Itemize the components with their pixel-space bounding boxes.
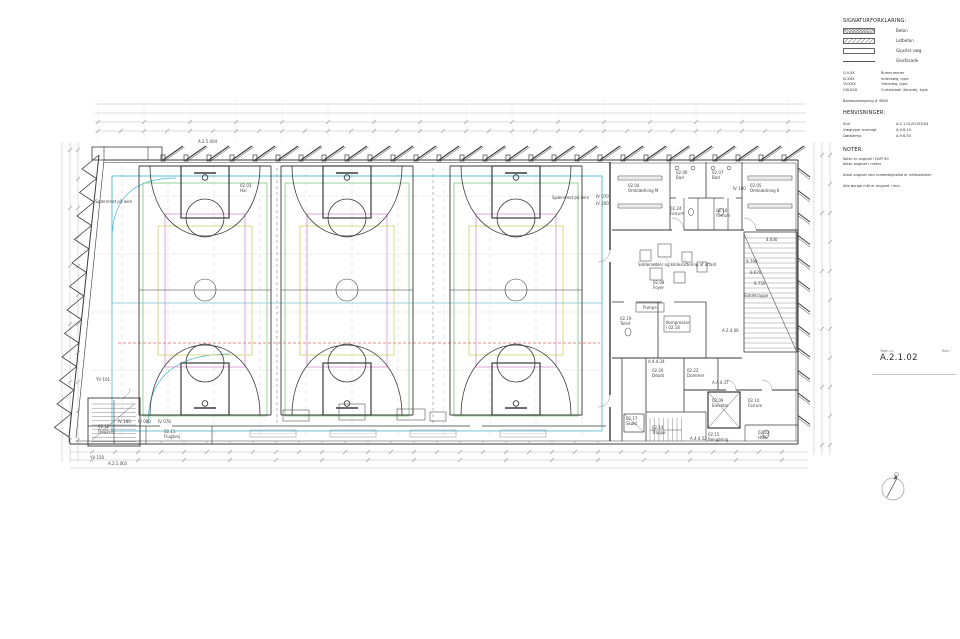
basketball-courts — [139, 166, 582, 415]
legend-extra-note: Baneopstregning jf. 9805 — [843, 99, 888, 103]
drawing-number: A.2.1.02 — [880, 353, 918, 363]
north-arrow — [882, 473, 904, 501]
building-walls — [69, 147, 798, 444]
sw-let-swatch — [843, 48, 875, 54]
floor-plan-svg — [0, 0, 960, 639]
sw-glas-swatch — [843, 61, 875, 62]
references-title: HENVISNINGER: — [843, 110, 885, 116]
escape-stair — [88, 388, 140, 446]
legend-item-label: Gips/let væg — [896, 48, 921, 53]
reference-row: Vægtyper oversigtA.9.6.10 — [843, 128, 911, 132]
sw-letbeton-swatch — [843, 38, 875, 44]
court-overlays — [112, 176, 602, 431]
divider-nets — [277, 168, 433, 424]
drawing-sheet: 02.03 HalSpærrenet på wireSpærrenet på w… — [0, 0, 960, 639]
seating-stair — [744, 232, 797, 352]
revision-label: Rev.: — [942, 349, 951, 353]
reference-row: DørskemaA.9.6.50 — [843, 134, 911, 138]
legend-code-row: CW.XXXCurtainwall (facade), type — [843, 88, 928, 92]
notes-text: Koter er angivet i DVR 90 Koter angivet … — [843, 157, 960, 189]
reference-row: SnitA.3.1.01/02/03/04 — [843, 122, 928, 126]
legend-item: Beton — [843, 28, 960, 36]
legend-item-label: Beton — [896, 28, 908, 33]
legend-item: Letbeton — [843, 38, 960, 46]
sw-beton-swatch — [843, 28, 875, 34]
hall-bottom-band — [88, 404, 606, 444]
legend-title: SIGNATURFORKLARING: — [843, 18, 906, 24]
legend-item-label: Glasfacade — [896, 58, 918, 63]
right-wing-rooms — [612, 162, 798, 441]
titleblock-rule — [872, 374, 956, 375]
legend-item: Glasfacade — [843, 58, 960, 66]
legend-code-row: O.V.XXRumnummer — [843, 71, 904, 75]
notes-title: NOTER: — [843, 147, 863, 153]
legend-item: Gips/let væg — [843, 48, 960, 56]
legend-code-row: IV.XXXIndervæg, type — [843, 77, 909, 81]
legend-item-label: Letbeton — [896, 38, 914, 43]
legend-code-row: YV.XXXYdervæg, type — [843, 82, 907, 86]
structural-grid — [92, 166, 606, 438]
